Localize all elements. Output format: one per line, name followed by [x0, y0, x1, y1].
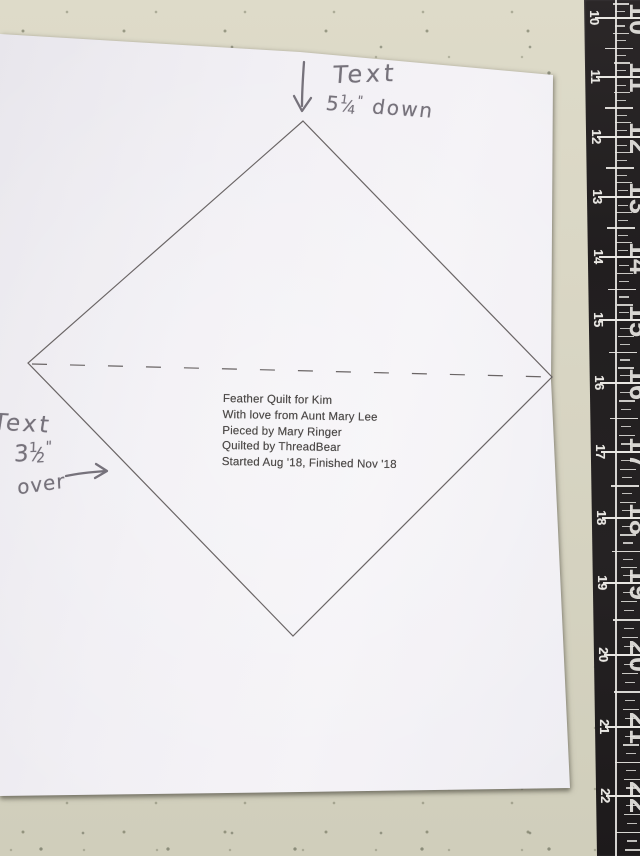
ruler-inch-number: 16: [589, 373, 609, 393]
ruler-eighth-tick: [622, 526, 632, 527]
ruler-quarter-tick: [621, 601, 637, 602]
ruler-quarter-tick: [613, 33, 629, 34]
handwritten-left-word: Text: [0, 410, 54, 439]
ruler-eighth-tick: [626, 753, 636, 754]
ruler-half-tick: [611, 485, 639, 487]
ruler-eighth-tick: [617, 160, 627, 161]
ruler-quarter-tick: [616, 242, 632, 243]
ruler-eighth-tick: [620, 359, 630, 360]
ruler-eighth-tick: [624, 646, 634, 647]
ruler-half-tick: [612, 551, 640, 553]
ruler-large-number: 10: [624, 3, 640, 33]
ruler-quarter-tick: [624, 779, 640, 780]
ruler-eighth-tick: [615, 25, 625, 26]
down-arrow: [294, 62, 311, 111]
ruler-inch-number: 21: [594, 717, 614, 737]
ruler-half-tick: [610, 418, 638, 420]
ruler-eighth-tick: [618, 250, 628, 251]
ruler-half-tick: [613, 619, 640, 621]
ruler-quarter-tick: [619, 435, 635, 436]
ruler-quarter-tick: [623, 744, 639, 745]
ruler-quarter-tick: [622, 637, 638, 638]
ruler-half-tick: [608, 289, 636, 291]
ruler-large-number: 16: [624, 368, 640, 398]
ruler-inch-number: 20: [593, 645, 613, 665]
ruler-eighth-tick: [625, 682, 635, 683]
ruler-eighth-tick: [623, 559, 633, 560]
inch-mark: ": [356, 92, 364, 107]
ruler-large-number: 13: [624, 182, 640, 212]
measure-direction: down: [371, 94, 436, 122]
ruler-eighth-tick: [616, 40, 626, 41]
ruler-inch-number: 13: [587, 187, 607, 207]
photo-scene: Feather Quilt for Kim With love from Aun…: [0, 0, 640, 856]
ruler-eighth-tick: [625, 736, 635, 737]
ruler-eighth-tick: [626, 805, 636, 806]
ruler-quarter-tick: [620, 469, 636, 470]
ruler-quarter-tick: [616, 212, 632, 213]
ruler-quarter-tick: [618, 367, 634, 368]
ruler-eighth-tick: [621, 443, 631, 444]
diamond-outline: [28, 121, 552, 636]
ruler-eighth-tick: [619, 265, 629, 266]
ruler-eighth-tick: [620, 344, 630, 345]
ruler-eighth-tick: [621, 409, 631, 410]
ruler-inch-number: 22: [595, 786, 615, 806]
ruler-eighth-tick: [616, 100, 626, 101]
ruler-inch-number: 11: [585, 67, 605, 87]
ruler-inch-number: 15: [588, 310, 608, 330]
ruler-eighth-tick: [621, 460, 631, 461]
ruler-quarter-tick: [624, 814, 640, 815]
ruler-eighth-tick: [618, 220, 628, 221]
ruler-inch-number: 19: [592, 573, 612, 593]
ruler-eighth-tick: [626, 770, 636, 771]
ruler-large-number: 17: [624, 437, 640, 467]
ruler-inch-number: 14: [588, 247, 608, 267]
ruler-eighth-tick: [626, 787, 636, 788]
ruler-eighth-tick: [619, 312, 629, 313]
ruler-quarter-tick: [615, 152, 631, 153]
ruler-half-tick: [605, 48, 633, 50]
ruler-eighth-tick: [620, 375, 630, 376]
ruler-quarter-tick: [614, 62, 630, 63]
ruler-large-number: 11: [624, 62, 640, 92]
ruler-quarter-tick: [613, 3, 629, 4]
ruler-half-tick: [609, 352, 637, 354]
quilt-label-text: Feather Quilt for Kim With love from Aun…: [222, 392, 398, 474]
ruler-large-number: 18: [624, 503, 640, 533]
ruler-eighth-tick: [619, 281, 629, 282]
ruler-inch-number: 18: [591, 508, 611, 528]
ruler-eighth-tick: [618, 235, 628, 236]
ruler-eighth-tick: [625, 718, 635, 719]
ruler-quarter-tick: [625, 849, 640, 850]
ruler-eighth-tick: [616, 85, 626, 86]
ruler-large-number: 21: [624, 712, 640, 742]
ruler-eighth-tick: [616, 70, 626, 71]
right-arrow: [66, 464, 107, 478]
ruler-eighth-tick: [622, 510, 632, 511]
ruler-quarter-tick: [617, 304, 633, 305]
ruler-quarter-tick: [619, 400, 635, 401]
ruler-eighth-tick: [615, 11, 625, 12]
ruler-eighth-tick: [622, 493, 632, 494]
ruler-eighth-tick: [620, 392, 630, 393]
ruler-inch-number: 10: [584, 8, 604, 28]
ruler-quarter-tick: [614, 92, 630, 93]
ruler-eighth-tick: [616, 55, 626, 56]
ruler-large-number: 12: [624, 122, 640, 152]
quilt-label-line: Started Aug '18, Finished Nov '18: [222, 455, 397, 474]
ruler-eighth-tick: [622, 477, 632, 478]
ruler-eighth-tick: [624, 664, 634, 665]
ruler-eighth-tick: [624, 628, 634, 629]
ruler-large-number: 22: [624, 781, 640, 811]
ruler-eighth-tick: [624, 610, 634, 611]
ruler-half-tick: [607, 227, 635, 229]
ruler-quarter-tick: [618, 336, 634, 337]
ruler-eighth-tick: [618, 205, 628, 206]
ruler-eighth-tick: [623, 542, 633, 543]
ruler-eighth-tick: [617, 175, 627, 176]
ruler-quarter-tick: [615, 122, 631, 123]
ruler-eighth-tick: [619, 296, 629, 297]
ruler-half-tick: [616, 832, 640, 834]
ruler-half-tick: [605, 107, 633, 109]
ruler-eighth-tick: [617, 145, 627, 146]
ruler-eighth-tick: [618, 190, 628, 191]
ruler-quarter-tick: [617, 273, 633, 274]
ruler-quarter-tick: [620, 502, 636, 503]
ruler-eighth-tick: [620, 328, 630, 329]
measure-frac-denominator: 4: [346, 102, 357, 117]
ruler-inch-number: 12: [586, 127, 606, 147]
ruler-eighth-tick: [623, 592, 633, 593]
ruler-eighth-tick: [623, 575, 633, 576]
ruler-half-tick: [606, 167, 634, 169]
ruler-half-tick: [614, 691, 640, 693]
handwritten-left-measurement: 31⁄2": [14, 439, 53, 468]
ruler-large-number: 20: [624, 640, 640, 670]
fold-dashed-line: [32, 364, 552, 377]
ruler-eighth-tick: [627, 840, 637, 841]
measure-whole: 3: [14, 441, 30, 468]
ruler-large-number: 15: [624, 305, 640, 335]
ruler-eighth-tick: [627, 823, 637, 824]
ruler-quarter-tick: [623, 709, 639, 710]
ruler-inch-number: 17: [590, 442, 610, 462]
ruler-eighth-tick: [621, 426, 631, 427]
handwritten-top-word: Text: [332, 59, 398, 89]
ruler-half-tick: [615, 762, 640, 764]
ruler-large-number: 14: [624, 242, 640, 272]
ruler-eighth-tick: [617, 115, 627, 116]
inch-mark: ": [45, 439, 52, 455]
ruler-large-number: 19: [624, 568, 640, 598]
ruler-eighth-tick: [617, 130, 627, 131]
ruler-quarter-tick: [616, 182, 632, 183]
ruler-eighth-tick: [625, 700, 635, 701]
measure-frac-denominator: 2: [36, 450, 45, 467]
ruler-quarter-tick: [622, 673, 638, 674]
ruler-quarter-tick: [620, 534, 636, 535]
ruler-quarter-tick: [621, 567, 637, 568]
